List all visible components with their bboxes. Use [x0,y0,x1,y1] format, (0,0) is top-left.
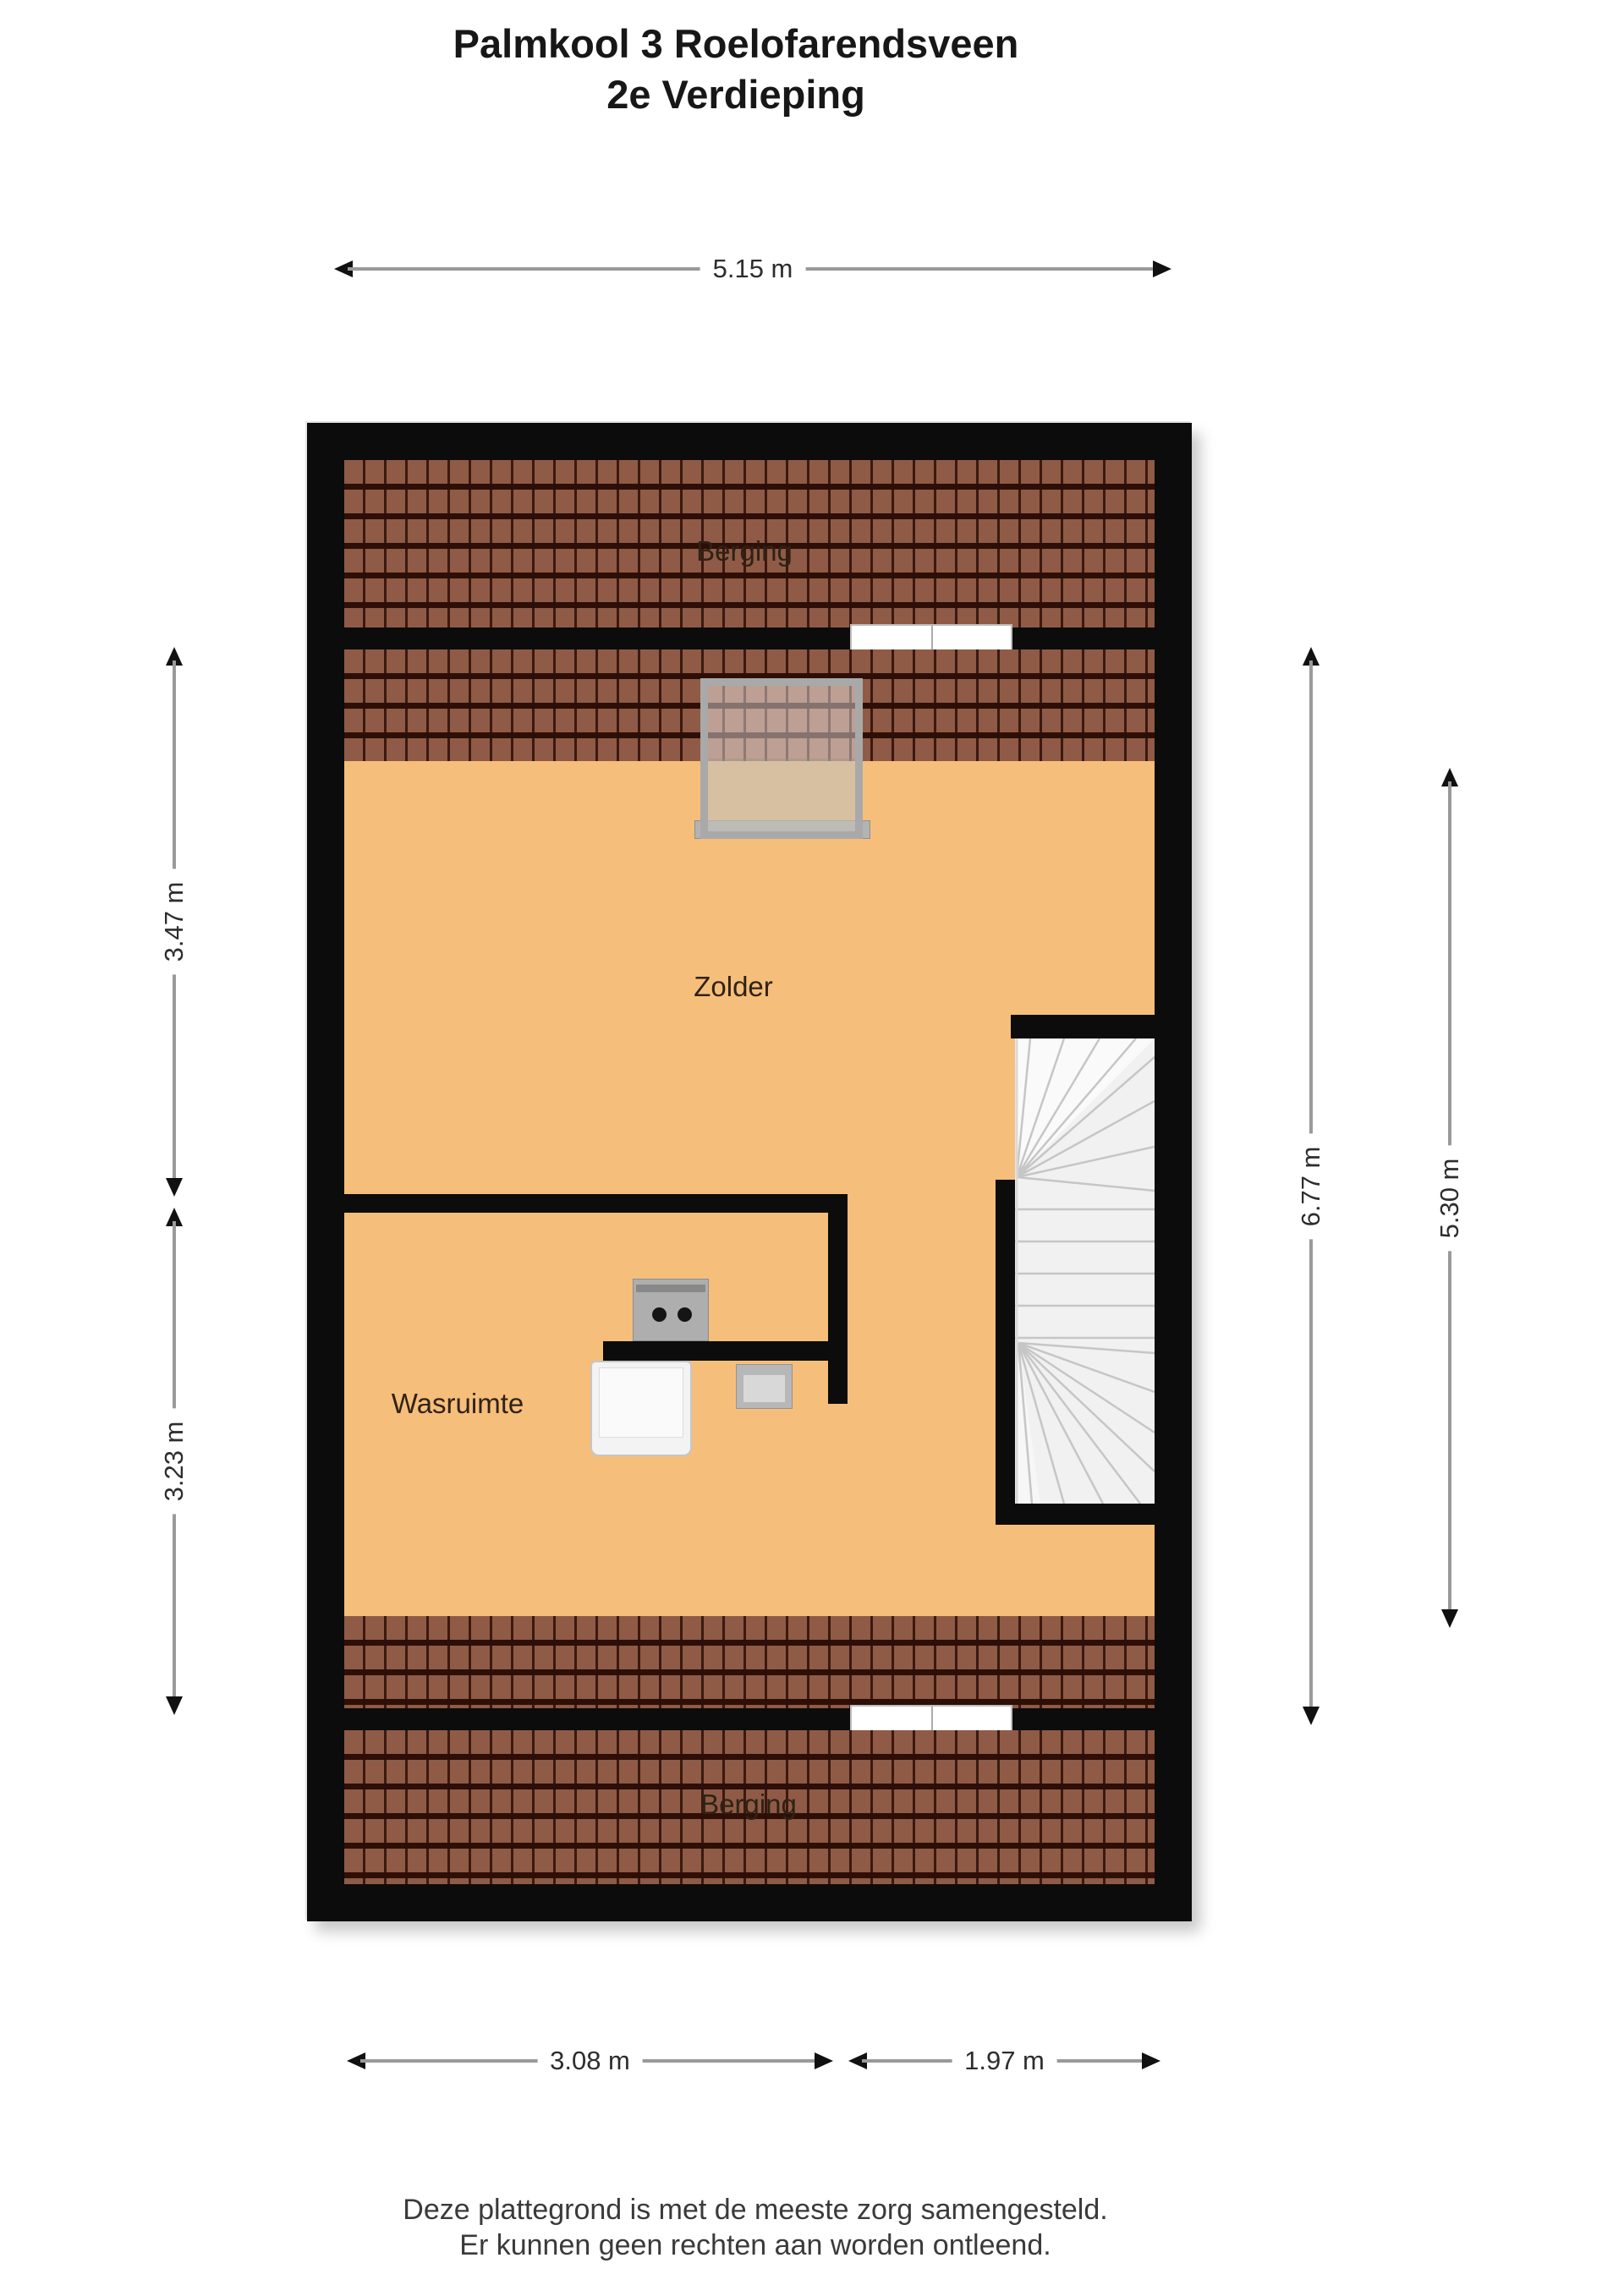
page-title-line1: Palmkool 3 Roelofarendsveen [288,19,1184,69]
room-label-zolder: Zolder [694,971,773,1003]
wall-stairs-left [996,1180,1015,1525]
room-label-berging-top: Berging [696,535,793,567]
double-door-icon-bottom [850,1705,1012,1734]
boiler-icon [633,1279,709,1341]
dimension-label: 5.30 m [1435,1145,1465,1251]
sink-basin [743,1375,785,1402]
dimension-left-lower: 3.23 m [160,1208,189,1715]
dimension-label: 3.23 m [159,1409,189,1515]
dimension-label: 1.97 m [952,2046,1057,2076]
room-label-berging-bottom: Berging [700,1789,797,1821]
disclaimer-line1: Deze plattegrond is met de meeste zorg s… [304,2192,1206,2228]
wall-stairs-top [1011,1015,1155,1038]
double-door-icon-top [850,624,1012,653]
floorplan-page: { "title": { "line1": "Palmkool 3 Roelof… [0,0,1624,2296]
door-split-line [931,626,933,651]
boiler-knob [678,1307,692,1322]
wall-wasruimte-right [828,1194,848,1404]
dimension-label: 6.77 m [1296,1133,1326,1239]
disclaimer-line2: Er kunnen geen rechten aan worden ontlee… [304,2228,1206,2263]
dimension-bottom-right: 1.97 m [848,2047,1160,2075]
floorplan: Berging Zolder Wasruimte [307,423,1192,1921]
dimension-label: 3.08 m [537,2046,643,2076]
boiler-handle [636,1285,705,1292]
door-split-line [931,1707,933,1732]
dimension-label: 3.47 m [159,869,189,975]
skylight-window-icon [700,678,863,839]
sink-icon [736,1364,793,1409]
dimension-top: 5.15 m [334,255,1171,283]
washing-machine-icon [590,1361,692,1456]
dimension-right-outer: 6.77 m [1297,647,1325,1725]
berging-bottom-roof-band [344,1616,1155,1708]
disclaimer: Deze plattegrond is met de meeste zorg s… [304,2192,1206,2263]
winder-staircase-icon [1015,1038,1155,1504]
washing-machine-lid [599,1367,683,1438]
wall-wasruimte-niche [603,1341,848,1361]
dimension-left-upper: 3.47 m [160,647,189,1197]
wall-stairs-bottom [996,1504,1155,1525]
dimension-label: 5.15 m [700,254,806,284]
page-title: Palmkool 3 Roelofarendsveen 2e Verdiepin… [288,19,1184,120]
skylight-glass [708,759,855,831]
wall-wasruimte-top [344,1194,848,1213]
dimension-right-inner: 5.30 m [1435,768,1464,1628]
boiler-knob [652,1307,667,1322]
page-title-line2: 2e Verdieping [288,69,1184,120]
dimension-bottom-left: 3.08 m [347,2047,833,2075]
room-label-wasruimte: Wasruimte [392,1388,524,1420]
